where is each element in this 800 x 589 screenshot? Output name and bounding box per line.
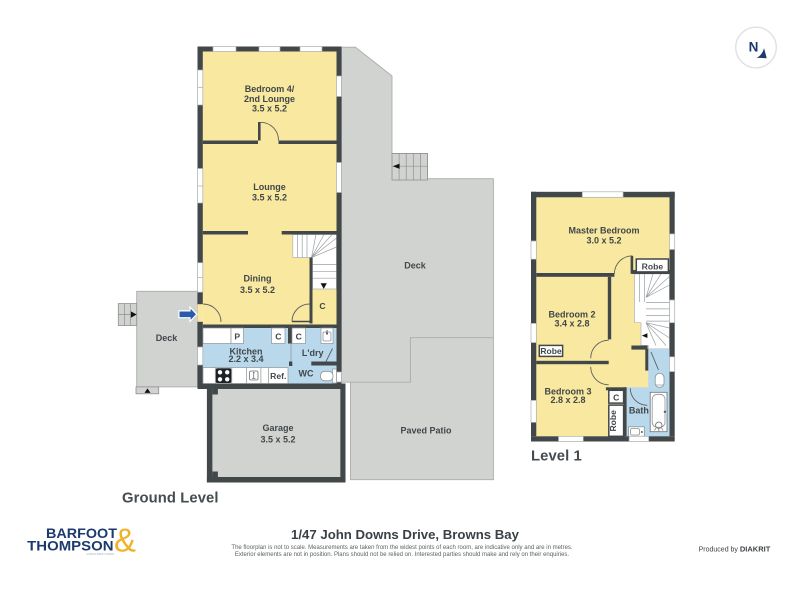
svg-text:3.5 x 5.2: 3.5 x 5.2 — [252, 103, 287, 113]
svg-text:Exterior elements are not in p: Exterior elements are not in position. P… — [235, 552, 570, 558]
svg-text:Ground Level: Ground Level — [122, 491, 219, 507]
svg-text:N: N — [749, 40, 759, 55]
svg-text:3.0 x 5.2: 3.0 x 5.2 — [586, 235, 621, 245]
svg-text:2.8 x 2.8: 2.8 x 2.8 — [550, 395, 585, 405]
svg-text:C: C — [275, 332, 281, 342]
svg-text:P: P — [234, 332, 240, 342]
svg-text:C: C — [613, 393, 619, 403]
svg-text:Robe: Robe — [642, 262, 664, 272]
svg-text:Ref.: Ref. — [270, 371, 286, 381]
svg-text:3.4 x 2.8: 3.4 x 2.8 — [554, 318, 589, 328]
svg-text:C: C — [319, 301, 325, 311]
svg-text:2.2 x 3.4: 2.2 x 3.4 — [228, 354, 263, 364]
svg-text:Dining: Dining — [244, 274, 272, 284]
svg-text:Robe: Robe — [540, 346, 562, 356]
svg-text:3.5 x 5.2: 3.5 x 5.2 — [240, 285, 275, 295]
svg-text:&: & — [114, 522, 136, 559]
svg-text:Produced by DIAKRIT: Produced by DIAKRIT — [699, 545, 771, 554]
svg-text:Bedroom 4/: Bedroom 4/ — [245, 84, 295, 94]
svg-text:Deck: Deck — [156, 333, 179, 343]
svg-text:2nd Lounge: 2nd Lounge — [244, 94, 295, 104]
svg-text:Lounge: Lounge — [253, 182, 286, 192]
svg-text:Robe: Robe — [608, 410, 618, 432]
svg-text:3.5 x 5.2: 3.5 x 5.2 — [252, 193, 287, 203]
svg-text:3.5 x 5.2: 3.5 x 5.2 — [260, 434, 295, 444]
svg-text:Garage: Garage — [262, 423, 293, 433]
svg-text:WC: WC — [299, 369, 314, 379]
svg-text:1/47 John Downs Drive, Browns: 1/47 John Downs Drive, Browns Bay — [291, 527, 520, 542]
svg-text:Paved Patio: Paved Patio — [400, 426, 452, 436]
svg-text:Deck: Deck — [404, 261, 427, 271]
svg-text:C: C — [296, 332, 302, 342]
svg-text:THOMPSON: THOMPSON — [27, 539, 113, 554]
svg-text:Master Bedroom: Master Bedroom — [568, 226, 639, 236]
svg-text:A DIVISION OF BARFOOT & THOMPS: A DIVISION OF BARFOOT & THOMPSON — [87, 553, 115, 556]
svg-text:Level 1: Level 1 — [531, 449, 582, 465]
svg-text:The floorplan is not to scale.: The floorplan is not to scale. Measureme… — [231, 545, 573, 551]
svg-text:Bath: Bath — [629, 405, 649, 415]
svg-text:L'dry: L'dry — [302, 348, 324, 358]
